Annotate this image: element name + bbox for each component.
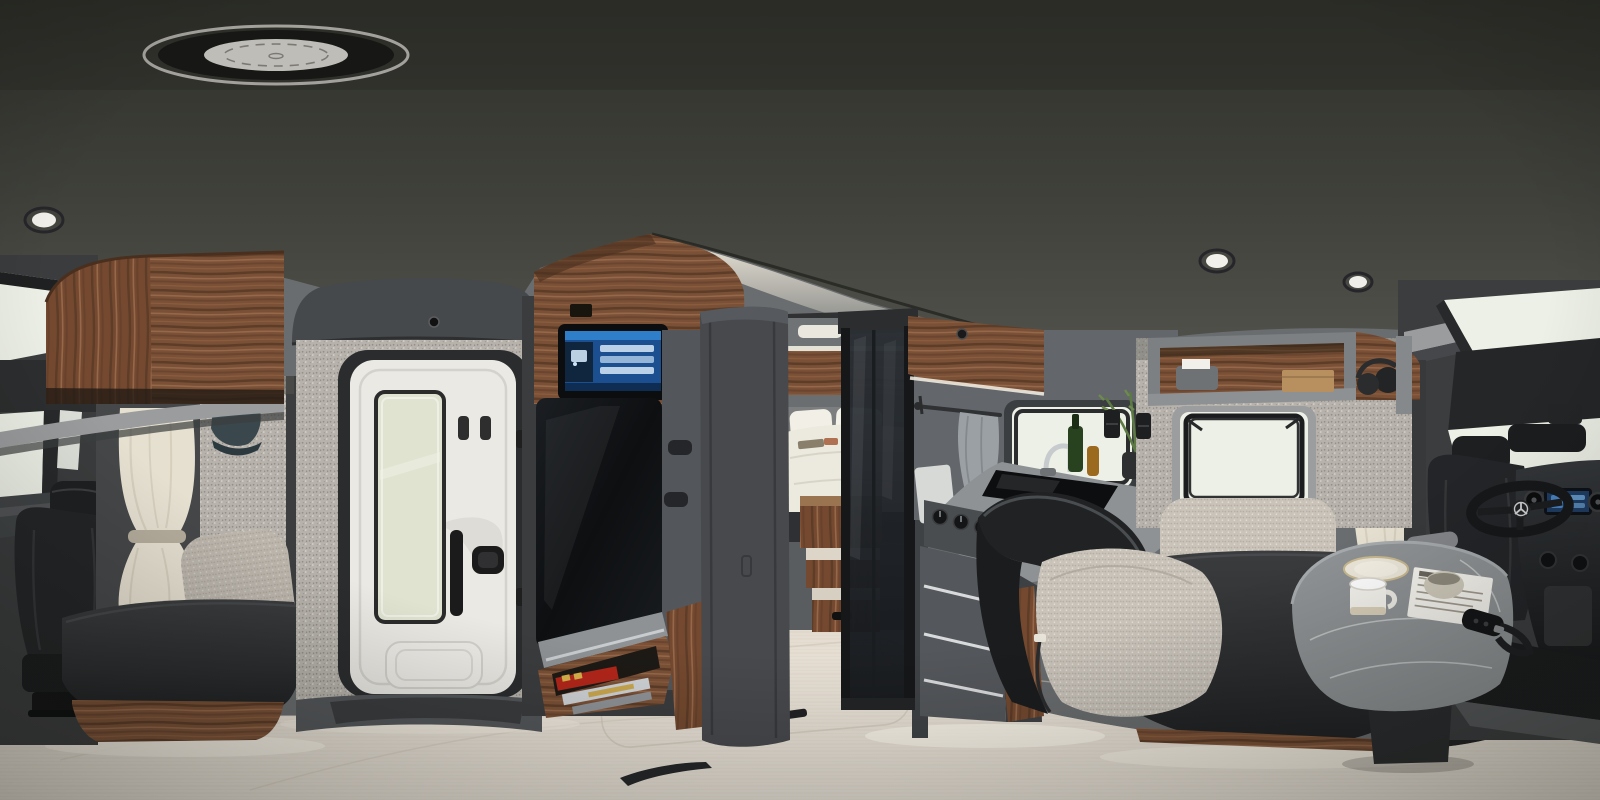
green-bottle	[1068, 426, 1083, 472]
stone-bowl	[1424, 571, 1464, 599]
bathroom-door	[350, 360, 525, 694]
bottle-neck	[1072, 414, 1079, 429]
door-handle	[450, 530, 463, 616]
panorama-canvas	[0, 0, 1600, 800]
pillar-latch	[742, 556, 751, 576]
glass-mullion	[872, 330, 876, 702]
plate-center	[1354, 561, 1398, 577]
frame-handle	[668, 440, 692, 455]
cabinet-vent	[570, 304, 592, 317]
lock-detail	[478, 552, 498, 568]
fob-button	[1474, 619, 1479, 624]
glass-frame-right	[904, 326, 915, 706]
vent-hub	[1531, 497, 1536, 502]
air-vent-low	[1572, 555, 1588, 571]
screen-row	[600, 356, 654, 363]
motorhome-interior-panorama	[0, 0, 1600, 800]
center-console	[1544, 586, 1592, 646]
screen-dot	[573, 362, 577, 366]
screen-topbar	[565, 331, 661, 340]
amber-bottle	[1087, 446, 1099, 476]
shelf-end-column	[1396, 336, 1412, 414]
floor-led-glow	[865, 724, 1105, 748]
moulded-step	[386, 642, 482, 688]
lounge-bench-left	[62, 599, 304, 716]
screen-vehicle-icon	[571, 350, 587, 362]
pod-cowl	[292, 278, 540, 346]
screen-row	[600, 345, 654, 352]
bedroom-ceiling-lamp	[798, 325, 842, 338]
windshield-left	[0, 411, 44, 499]
mirror-mount	[1548, 404, 1582, 424]
sensor-dot	[429, 317, 439, 327]
curtain-tie	[128, 530, 186, 543]
control-touchscreen[interactable]	[558, 324, 668, 400]
roof-fan-skylight	[144, 26, 408, 84]
faucet-base	[1040, 468, 1056, 476]
cord-clip	[1034, 634, 1046, 642]
overhead-walnut-cabinet-left	[46, 252, 284, 404]
wooden-box	[1282, 370, 1334, 392]
frosted-glass-panel	[376, 392, 444, 622]
bowl-opening	[1428, 573, 1460, 585]
mug-base-band	[1350, 607, 1386, 615]
screen-bottombar	[565, 383, 661, 391]
tissue-box	[1176, 366, 1218, 390]
frame-handle	[664, 492, 688, 507]
speaker-dot	[957, 329, 967, 339]
mug-rim	[1350, 578, 1386, 590]
glass-frame-left	[841, 328, 850, 706]
fob-button	[1484, 622, 1489, 627]
vent-slot	[458, 416, 469, 440]
bathroom-pod	[292, 278, 542, 732]
air-vent-low	[1540, 552, 1556, 568]
tissue-paper	[1182, 359, 1210, 369]
vent-slot	[480, 416, 491, 440]
walnut-plinth	[72, 700, 284, 742]
screen-row	[600, 367, 654, 374]
dinette-window[interactable]	[1172, 406, 1316, 514]
bed-items	[824, 438, 838, 445]
cabinet-shadow	[46, 388, 284, 404]
glass-bottom-rail	[841, 698, 915, 710]
rail-hook	[920, 396, 922, 414]
